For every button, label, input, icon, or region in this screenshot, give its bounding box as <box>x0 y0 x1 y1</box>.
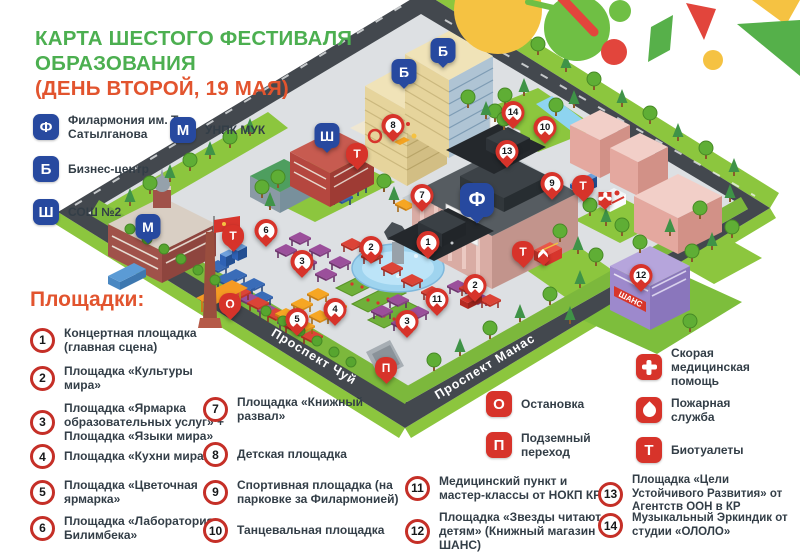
venue-item-8: 8Детская площадка <box>203 442 387 467</box>
venue-number: 7 <box>203 397 228 422</box>
legend-label: Подземный переход <box>521 431 611 459</box>
map-pin-Ф[interactable]: Ф <box>460 183 494 221</box>
legend-item-underpass: П Подземный переход <box>486 431 611 459</box>
map-pin-cross[interactable] <box>599 192 612 208</box>
map-pin-flame[interactable] <box>538 251 548 264</box>
legend-label: Остановка <box>521 397 584 411</box>
map-pin-2[interactable]: 2 <box>464 274 487 300</box>
map-pin-3[interactable]: 3 <box>291 250 314 276</box>
venue-label: Площадка «Цели Устойчивого Развития» от … <box>632 474 797 515</box>
legend-item-muk: М УНПК МУК <box>170 117 265 143</box>
biotoilet-icon: Т <box>636 437 662 463</box>
venue-number: 5 <box>30 480 55 505</box>
legend-item-school: Ш СОШ №2 <box>33 199 121 225</box>
map-pin-Б[interactable]: Б <box>431 38 456 66</box>
map-pin-2[interactable]: 2 <box>360 236 383 262</box>
map-pin-Т[interactable]: Т <box>572 175 594 200</box>
map-pin-5[interactable]: 5 <box>286 308 309 334</box>
map-pin-9[interactable]: 9 <box>541 172 564 198</box>
venue-item-5: 5Площадка «Цветочная ярмарка» <box>30 478 214 506</box>
muk-icon: М <box>170 117 196 143</box>
venue-number: 9 <box>203 480 228 505</box>
map-pin-Ш[interactable]: Ш <box>315 123 340 151</box>
venue-label: Медицинский пункт и мастер-классы от НОК… <box>439 474 614 502</box>
map-pin-Т[interactable]: Т <box>512 241 534 266</box>
legend-label: СОШ №2 <box>68 205 121 219</box>
map-pin-8[interactable]: 8 <box>382 114 405 140</box>
bus-stop-icon: О <box>486 391 512 417</box>
school-icon: Ш <box>33 199 59 225</box>
venue-item-6: 6Площадка «Лаборатория Билимбека» <box>30 514 224 542</box>
venue-item-7: 7Площадка «Книжный развал» <box>203 395 367 423</box>
flame-icon <box>636 397 662 423</box>
venue-label: Площадка «Книжный развал» <box>237 395 367 423</box>
venue-number: 8 <box>203 442 228 467</box>
venue-number: 4 <box>30 444 55 469</box>
page-title: КАРТА ШЕСТОГО ФЕСТИВАЛЯ ОБРАЗОВАНИЯ <box>35 26 365 76</box>
legend-item-business-center: Б Бизнес-центр <box>33 156 149 182</box>
venue-number: 10 <box>203 518 228 543</box>
venue-number: 6 <box>30 516 55 541</box>
venue-label: Детская площадка <box>237 447 387 461</box>
venue-number: 2 <box>30 366 55 391</box>
venue-number: 12 <box>405 519 430 544</box>
venue-number: 14 <box>598 513 623 538</box>
legend-item-ambulance: Скорая медицинская помощь <box>636 346 776 388</box>
map-pin-П[interactable]: П <box>375 357 397 382</box>
venue-number: 1 <box>30 328 55 353</box>
map-pin-М[interactable]: М <box>136 214 161 242</box>
venue-item-9: 9Спортивная площадка (на парковке за Фил… <box>203 478 402 506</box>
legend-label: Бизнес-центр <box>68 162 149 176</box>
map-pin-11[interactable]: 11 <box>426 288 449 314</box>
venue-label: Площадка «Цветочная ярмарка» <box>64 478 214 506</box>
map-pin-Т[interactable]: Т <box>346 143 368 168</box>
venue-item-14: 14Музыкальный Эркиндик от студии «ОЛОЛО» <box>598 512 797 539</box>
venue-number: 11 <box>405 476 430 501</box>
map-pin-10[interactable]: 10 <box>534 116 557 142</box>
map-pin-6[interactable]: 6 <box>255 219 278 245</box>
title-block: КАРТА ШЕСТОГО ФЕСТИВАЛЯ ОБРАЗОВАНИЯ (ДЕН… <box>35 26 365 101</box>
venue-label: Танцевальная площадка <box>237 523 407 537</box>
venue-label: Площадка «Звезды читают детям» (Книжный … <box>439 510 604 552</box>
infographic-root: ШАНС Проспект Чуй Проспект Манас <box>0 0 800 560</box>
map-pin-4[interactable]: 4 <box>324 298 347 324</box>
map-pin-14[interactable]: 14 <box>502 101 525 127</box>
venue-label: Музыкальный Эркиндик от студии «ОЛОЛО» <box>632 512 797 539</box>
map-pin-О[interactable]: О <box>219 293 241 318</box>
venue-item-2: 2Площадка «Культуры мира» <box>30 364 214 392</box>
underpass-icon: П <box>486 432 512 458</box>
map-pin-1[interactable]: 1 <box>417 231 440 257</box>
legend-label: Биотуалеты <box>671 443 744 457</box>
legend-item-bus-stop: О Остановка <box>486 391 584 417</box>
venue-label: Концертная площадка (главная сцена) <box>64 326 234 354</box>
venue-item-11: 11Медицинский пункт и мастер-классы от Н… <box>405 474 614 502</box>
venue-label: Спортивная площадка (на парковке за Фила… <box>237 478 402 506</box>
legend-item-fire-service: Пожарная служба <box>636 396 751 424</box>
map-pin-Т[interactable]: Т <box>222 225 244 250</box>
venue-item-13: 13Площадка «Цели Устойчивого Развития» о… <box>598 474 797 515</box>
legend-item-biotoilets: Т Биотуалеты <box>636 437 744 463</box>
venue-number: 3 <box>30 410 55 435</box>
legend-label: Пожарная служба <box>671 396 751 424</box>
map-pin-12[interactable]: 12 <box>630 264 653 290</box>
venues-heading: Площадки: <box>30 288 144 312</box>
map-pin-13[interactable]: 13 <box>496 140 519 166</box>
venue-item-10: 10Танцевальная площадка <box>203 518 407 543</box>
venue-label: Площадка «Культуры мира» <box>64 364 214 392</box>
business-center-icon: Б <box>33 156 59 182</box>
map-pin-7[interactable]: 7 <box>411 184 434 210</box>
map-pin-3[interactable]: 3 <box>396 310 419 336</box>
venue-item-12: 12Площадка «Звезды читают детям» (Книжны… <box>405 510 604 552</box>
legend-label: Скорая медицинская помощь <box>671 346 776 388</box>
map-pin-Б[interactable]: Б <box>392 59 417 87</box>
venue-item-1: 1Концертная площадка (главная сцена) <box>30 326 234 354</box>
venue-label: Площадка «Лаборатория Билимбека» <box>64 514 224 542</box>
medical-cross-icon <box>636 354 662 380</box>
philharmonic-icon: Ф <box>33 114 59 140</box>
page-subtitle: (ДЕНЬ ВТОРОЙ, 19 МАЯ) <box>35 76 365 101</box>
venue-number: 13 <box>598 482 623 507</box>
legend-label: УНПК МУК <box>205 123 265 137</box>
